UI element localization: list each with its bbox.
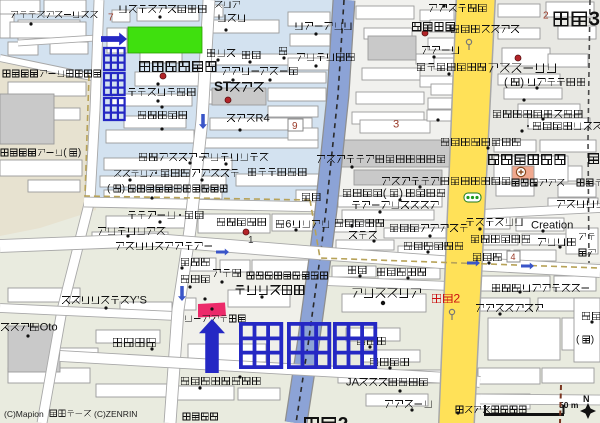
svg-text:(C)Mapion: (C)Mapion: [4, 409, 44, 419]
svg-text:3: 3: [589, 8, 600, 30]
svg-text:(C)ZENRIN: (C)ZENRIN: [94, 409, 137, 419]
svg-text:(: (: [383, 188, 387, 200]
svg-text:4: 4: [511, 252, 516, 262]
svg-text:50 m: 50 m: [559, 400, 579, 410]
svg-text:2: 2: [543, 11, 549, 22]
svg-text:2: 2: [338, 414, 349, 423]
svg-text:7: 7: [108, 13, 114, 24]
svg-text:ST: ST: [214, 79, 232, 94]
svg-text:1: 1: [248, 235, 254, 246]
svg-text:JA: JA: [346, 377, 360, 389]
svg-text:): ): [122, 184, 125, 195]
svg-text:Oto: Oto: [40, 322, 58, 334]
svg-text:): ): [591, 335, 594, 346]
svg-text:R4: R4: [255, 113, 269, 125]
svg-text:Creation: Creation: [531, 220, 573, 232]
svg-text:N: N: [583, 394, 590, 404]
svg-text:6: 6: [285, 219, 291, 231]
svg-text:(: (: [504, 77, 508, 89]
svg-text:): ): [78, 148, 81, 159]
svg-text:2: 2: [453, 291, 460, 305]
svg-text:): ): [520, 77, 524, 89]
svg-text:): ): [399, 188, 403, 200]
svg-text:3: 3: [393, 119, 399, 131]
svg-text:9: 9: [292, 121, 298, 132]
svg-text:Y’S: Y’S: [130, 295, 147, 307]
